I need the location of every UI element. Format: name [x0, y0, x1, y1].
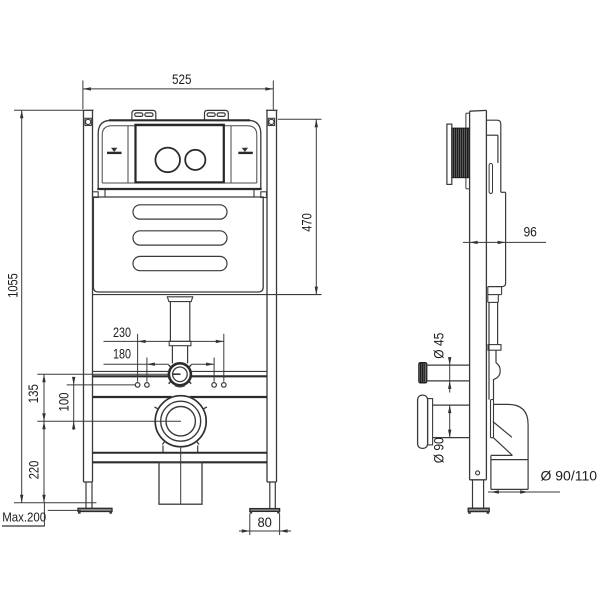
svg-text:230: 230 — [113, 324, 131, 340]
svg-text:1055: 1055 — [5, 273, 21, 298]
svg-text:180: 180 — [113, 346, 131, 362]
svg-text:135: 135 — [25, 384, 41, 403]
svg-text:Ø 45: Ø 45 — [431, 333, 447, 359]
svg-text:Ø 90/110: Ø 90/110 — [541, 468, 598, 484]
svg-text:100: 100 — [56, 392, 72, 411]
svg-text:Max.200: Max.200 — [2, 510, 46, 525]
svg-text:96: 96 — [523, 224, 537, 240]
svg-text:220: 220 — [26, 461, 42, 480]
svg-text:Ø 90: Ø 90 — [431, 437, 447, 463]
svg-text:80: 80 — [257, 514, 272, 530]
svg-text:470: 470 — [299, 213, 315, 232]
svg-text:525: 525 — [172, 71, 192, 87]
